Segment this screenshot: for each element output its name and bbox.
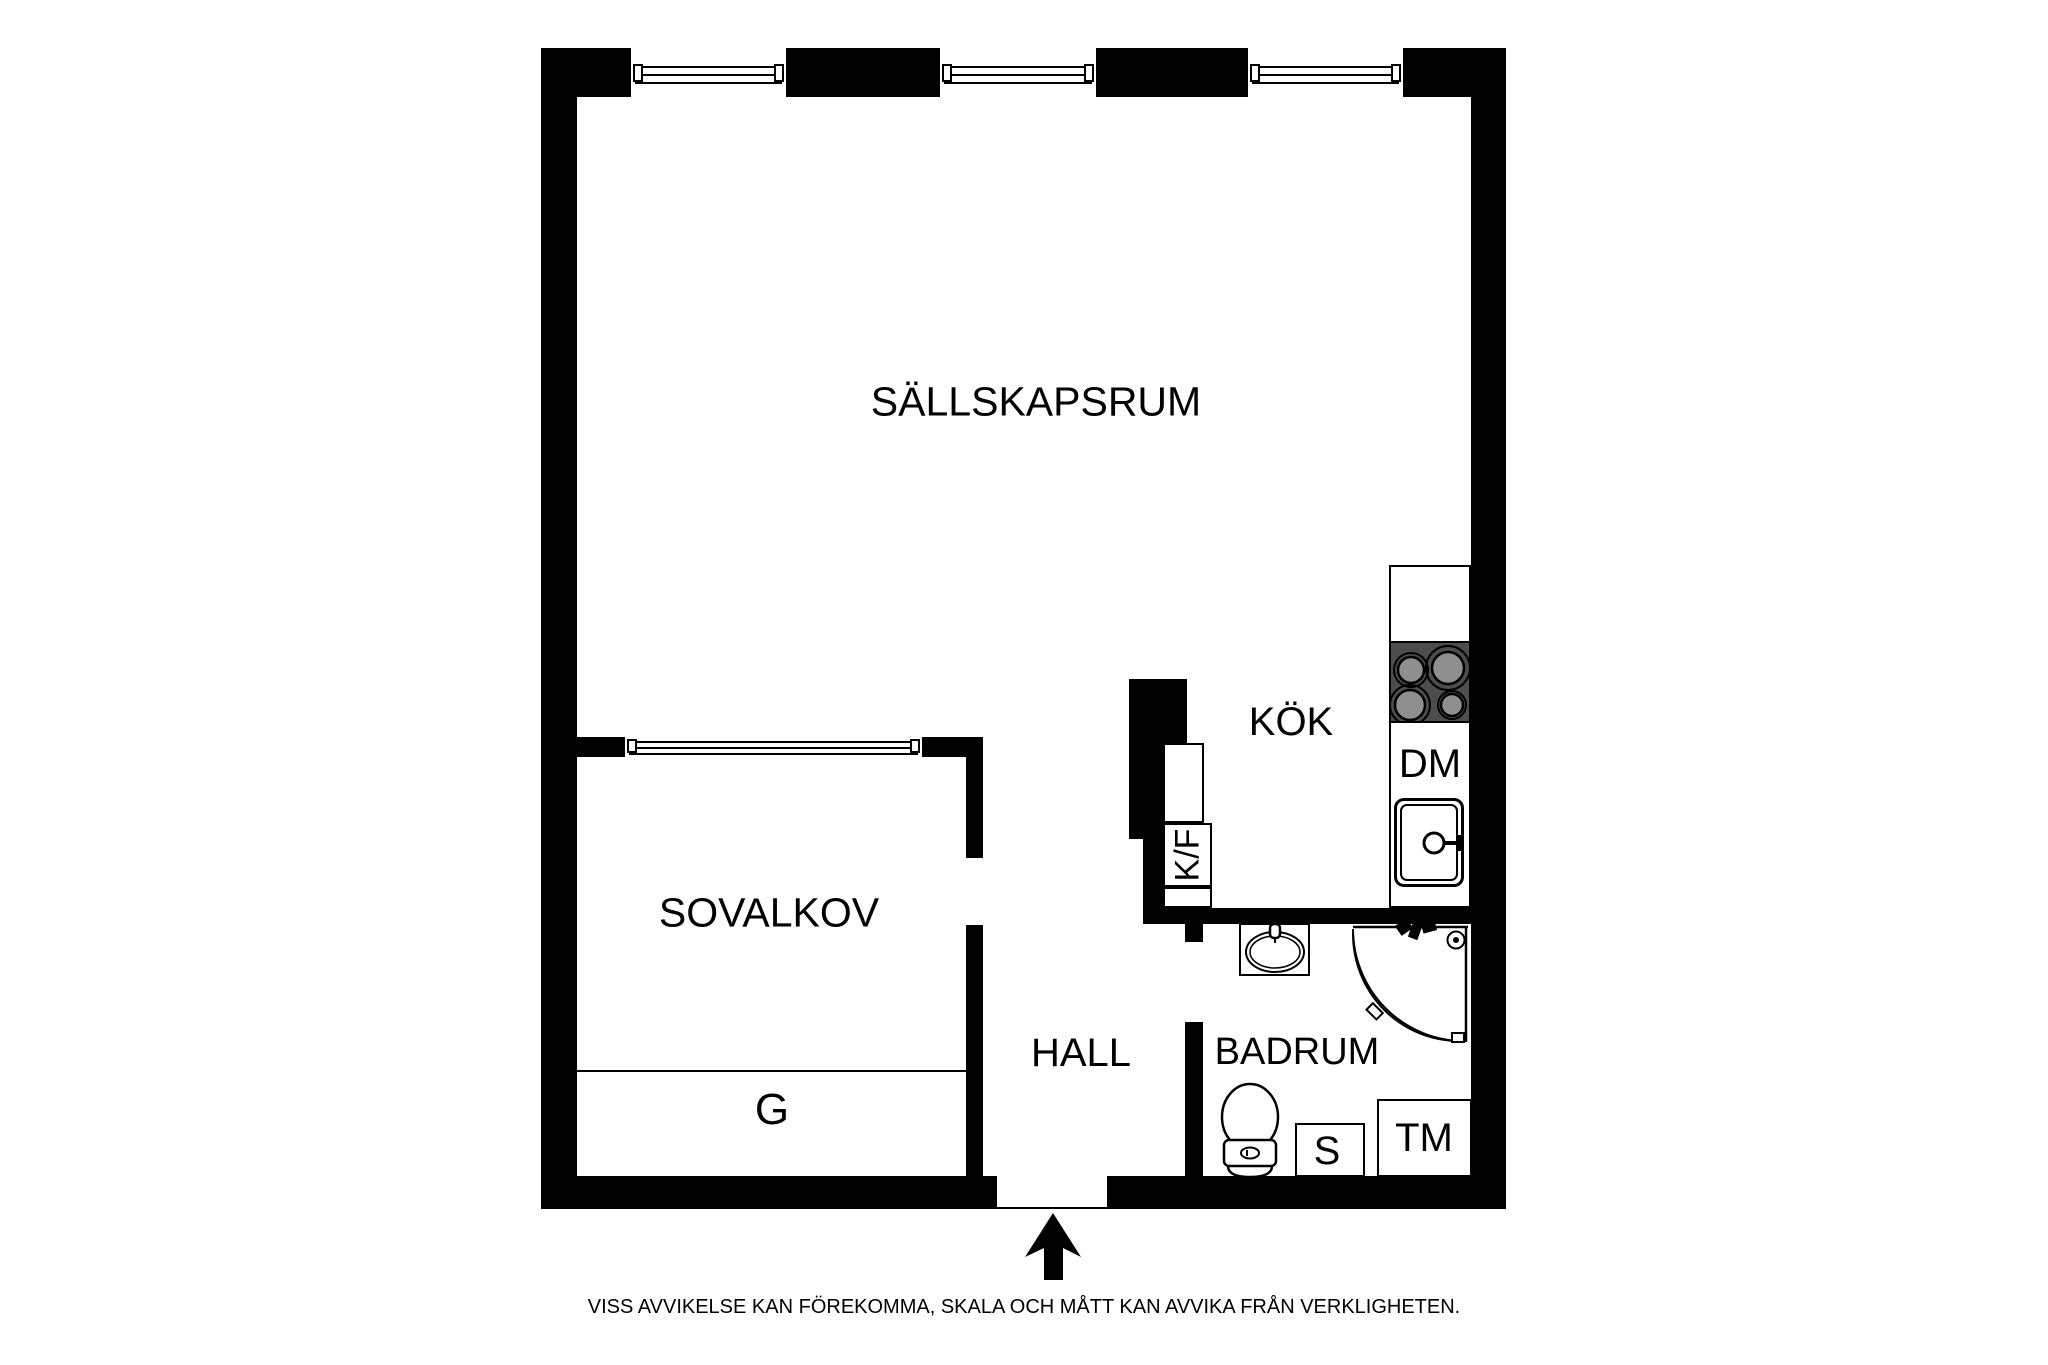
window-icon xyxy=(1248,48,1403,97)
partition-wall-segment xyxy=(577,737,625,757)
toilet-icon xyxy=(1215,1080,1285,1180)
room-label-sovalkov: SOVALKOV xyxy=(659,893,879,934)
wall-bottom-left xyxy=(541,1176,997,1209)
kitchen-faucet-icon xyxy=(1394,798,1464,887)
glass-partition-icon xyxy=(625,737,922,757)
fridge-freezer-label: K/F xyxy=(1171,829,1205,882)
partition-wall-segment xyxy=(922,737,983,757)
wall-top-segment xyxy=(786,48,940,97)
appliance-label-sink-unit: S xyxy=(1314,1131,1341,1171)
bathroom-left-wall xyxy=(1185,1022,1203,1176)
floor-plan: K/F xyxy=(0,0,2048,1365)
entrance-arrow-icon xyxy=(1015,1205,1095,1290)
wall-bottom-right xyxy=(1107,1176,1506,1209)
stove-icon xyxy=(1389,641,1471,723)
appliance-label-washing-machine: TM xyxy=(1395,1118,1453,1158)
window-icon xyxy=(631,48,786,97)
room-label-kok: KÖK xyxy=(1249,702,1333,742)
room-label-hall: HALL xyxy=(1031,1033,1131,1073)
room-label-badrum: BADRUM xyxy=(1215,1033,1380,1071)
appliance-label-dishwasher: DM xyxy=(1399,744,1461,784)
fridge-freezer-cabinet xyxy=(1163,743,1204,823)
sovalkov-right-wall-lower xyxy=(966,925,983,1176)
fridge-freezer-unit: K/F xyxy=(1163,823,1212,887)
bathroom-left-wall-stub xyxy=(1185,924,1203,942)
sovalkov-right-wall-upper xyxy=(966,757,983,858)
washbasin-icon xyxy=(1239,923,1310,976)
kitchen-cabinet-small xyxy=(1163,887,1212,908)
appliance-label-wardrobe: G xyxy=(755,1088,789,1132)
wall-left xyxy=(541,48,577,1209)
wardrobe-divider-line xyxy=(577,1070,966,1072)
disclaimer-text: VISS AVVIKELSE KAN FÖREKOMMA, SKALA OCH … xyxy=(588,1297,1460,1317)
room-label-sallskapsrum: SÄLLSKAPSRUM xyxy=(871,382,1201,423)
window-icon xyxy=(940,48,1096,97)
wall-top-segment xyxy=(1096,48,1248,97)
